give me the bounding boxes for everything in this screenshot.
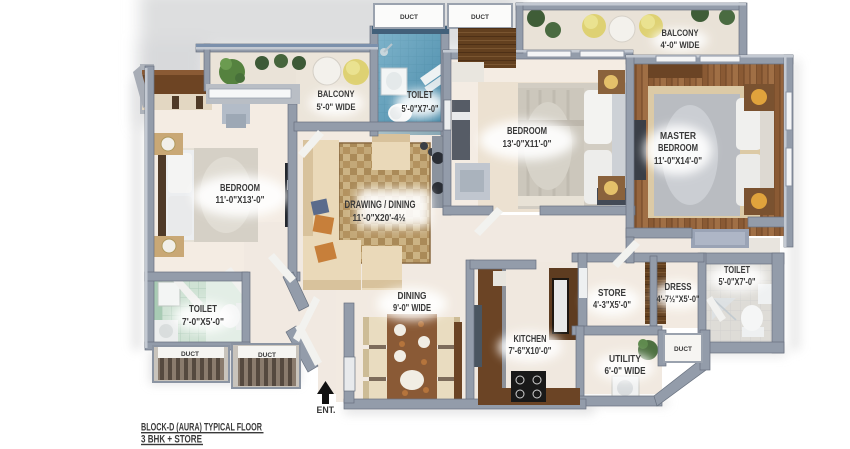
- svg-text:DRAWING / DINING: DRAWING / DINING: [345, 199, 416, 211]
- svg-text:STORE: STORE: [598, 287, 626, 299]
- svg-text:KITCHEN: KITCHEN: [514, 333, 547, 345]
- svg-text:TOILET: TOILET: [189, 303, 217, 315]
- svg-text:DUCT: DUCT: [471, 14, 489, 21]
- svg-text:DUCT: DUCT: [181, 351, 199, 358]
- svg-text:DINING: DINING: [398, 290, 427, 302]
- svg-text:9'-0" WIDE: 9'-0" WIDE: [393, 303, 431, 314]
- svg-text:BEDROOM: BEDROOM: [507, 125, 547, 137]
- svg-text:DUCT: DUCT: [258, 352, 276, 359]
- svg-text:BLOCK-D (AURA) TYPICAL FLOOR: BLOCK-D (AURA) TYPICAL FLOOR: [141, 422, 262, 434]
- svg-text:13'-0"X11'-0": 13'-0"X11'-0": [503, 139, 552, 150]
- svg-text:11'-0"X13'-0": 11'-0"X13'-0": [216, 195, 265, 206]
- svg-text:DRESS: DRESS: [665, 281, 692, 293]
- svg-text:6'-0" WIDE: 6'-0" WIDE: [605, 366, 646, 377]
- svg-text:UTILITY: UTILITY: [609, 353, 641, 365]
- svg-text:5'-0"X7'-0": 5'-0"X7'-0": [402, 104, 439, 115]
- svg-text:ENT.: ENT.: [317, 405, 336, 415]
- svg-text:5'-0"X7'-0": 5'-0"X7'-0": [719, 277, 756, 288]
- svg-text:BEDROOM: BEDROOM: [220, 182, 260, 194]
- svg-text:BEDROOM: BEDROOM: [658, 142, 698, 154]
- svg-text:BALCONY: BALCONY: [662, 28, 700, 39]
- svg-text:DUCT: DUCT: [400, 14, 418, 21]
- svg-text:TOILET: TOILET: [724, 264, 750, 276]
- svg-text:MASTER: MASTER: [660, 130, 696, 142]
- svg-text:5'-0" WIDE: 5'-0" WIDE: [317, 102, 356, 113]
- svg-text:3 BHK + STORE: 3 BHK + STORE: [141, 434, 202, 446]
- svg-text:BALCONY: BALCONY: [318, 89, 356, 100]
- svg-text:4'-0" WIDE: 4'-0" WIDE: [661, 40, 700, 51]
- svg-text:7'-0"X5'-0": 7'-0"X5'-0": [182, 317, 224, 328]
- svg-text:11'-0"X14'-0": 11'-0"X14'-0": [654, 156, 702, 167]
- svg-text:DUCT: DUCT: [674, 346, 692, 353]
- svg-text:4'-7½"X5'-0": 4'-7½"X5'-0": [657, 294, 700, 305]
- svg-text:TOILET: TOILET: [407, 89, 433, 101]
- svg-text:4'-3"X5'-0": 4'-3"X5'-0": [593, 300, 631, 311]
- svg-text:7'-6"X10'-0": 7'-6"X10'-0": [509, 346, 552, 357]
- svg-text:11'-0"X20'-4½: 11'-0"X20'-4½: [353, 212, 406, 224]
